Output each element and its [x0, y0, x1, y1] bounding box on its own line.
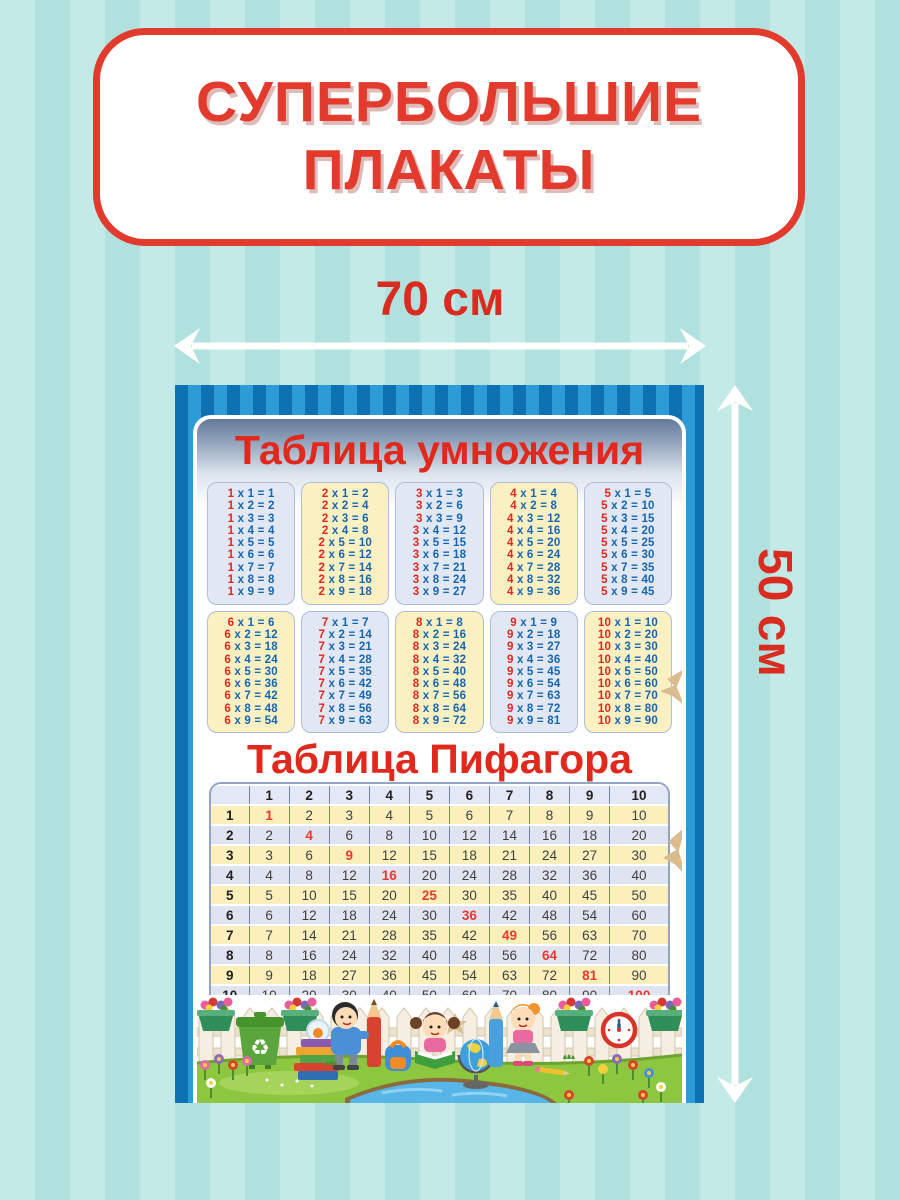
- mult-equation: 1 x 1 = 1: [209, 488, 293, 500]
- product-cell: 16: [369, 866, 409, 884]
- product-cell: 4: [249, 866, 289, 884]
- product-cell: 8: [289, 866, 329, 884]
- mult-equation: 8 x 5 = 40: [397, 666, 481, 678]
- col-header: 6: [449, 786, 489, 804]
- mult-equation: 3 x 2 = 6: [397, 500, 481, 512]
- product-cell: 2: [289, 806, 329, 824]
- banner-card: СУПЕРБОЛЬШИЕ ПЛАКАТЫ: [93, 28, 805, 246]
- mult-equation: 2 x 1 = 2: [303, 488, 387, 500]
- product-cell: 35: [489, 886, 529, 904]
- mult-equation: 6 x 6 = 36: [209, 678, 293, 690]
- product-cell: 32: [529, 866, 569, 884]
- pythagoras-header-row: 12345678910: [211, 786, 668, 804]
- mult-equation: 4 x 8 = 32: [492, 574, 576, 586]
- row-header: 3: [211, 846, 249, 864]
- mult-card: 9 x 1 = 99 x 2 = 189 x 3 = 279 x 4 = 369…: [490, 611, 578, 734]
- mult-equation: 9 x 5 = 45: [492, 666, 576, 678]
- mult-equation: 5 x 1 = 5: [586, 488, 670, 500]
- flower-box-icon: [197, 998, 235, 1032]
- product-cell: 30: [409, 906, 449, 924]
- product-cell: 36: [449, 906, 489, 924]
- mult-equation: 4 x 3 = 12: [492, 513, 576, 525]
- product-cell: 48: [529, 906, 569, 924]
- product-cell: 20: [409, 866, 449, 884]
- mult-equation: 4 x 2 = 8: [492, 500, 576, 512]
- product-cell: 30: [449, 886, 489, 904]
- mult-equation: 2 x 8 = 16: [303, 574, 387, 586]
- col-header: 9: [569, 786, 609, 804]
- product-cell: 5: [409, 806, 449, 824]
- product-cell: 72: [529, 966, 569, 984]
- mult-equation: 9 x 1 = 9: [492, 617, 576, 629]
- product-cell: 1: [249, 806, 289, 824]
- mult-equation: 1 x 6 = 6: [209, 549, 293, 561]
- mult-equation: 3 x 7 = 21: [397, 562, 481, 574]
- product-cell: 20: [609, 826, 668, 844]
- pythagoras-row: 55101520253035404550: [211, 886, 668, 904]
- product-cell: 56: [529, 926, 569, 944]
- mult-equation: 5 x 5 = 25: [586, 537, 670, 549]
- product-cell: 7: [249, 926, 289, 944]
- mult-equation: 5 x 3 = 15: [586, 513, 670, 525]
- row-header: 5: [211, 886, 249, 904]
- mult-equation: 6 x 3 = 18: [209, 641, 293, 653]
- product-cell: 40: [609, 866, 668, 884]
- mult-equation: 10 x 9 = 90: [586, 715, 670, 727]
- product-cell: 9: [569, 806, 609, 824]
- row-header: 9: [211, 966, 249, 984]
- mult-equation: 2 x 2 = 4: [303, 500, 387, 512]
- mult-equation: 2 x 6 = 12: [303, 549, 387, 561]
- mult-equation: 9 x 3 = 27: [492, 641, 576, 653]
- mult-equation: 3 x 3 = 9: [397, 513, 481, 525]
- product-cell: 5: [249, 886, 289, 904]
- mult-equation: 10 x 7 = 70: [586, 690, 670, 702]
- mult-equation: 9 x 8 = 72: [492, 703, 576, 715]
- mult-equation: 6 x 5 = 30: [209, 666, 293, 678]
- product-cell: 8: [369, 826, 409, 844]
- mult-card: 4 x 1 = 44 x 2 = 84 x 3 = 124 x 4 = 164 …: [490, 482, 578, 605]
- backpack-icon: [385, 1042, 411, 1071]
- mult-equation: 5 x 8 = 40: [586, 574, 670, 586]
- width-dimension-label: 70 см: [175, 272, 705, 327]
- product-cell: 15: [329, 886, 369, 904]
- mult-equation: 3 x 9 = 27: [397, 586, 481, 598]
- product-cell: 35: [409, 926, 449, 944]
- mult-equation: 1 x 5 = 5: [209, 537, 293, 549]
- product-cell: 49: [489, 926, 529, 944]
- pythagoras-table-wrap: 1234567891011234567891022468101214161820…: [209, 782, 670, 1008]
- product-cell: 24: [329, 946, 369, 964]
- product-cell: 18: [289, 966, 329, 984]
- product-cell: 36: [369, 966, 409, 984]
- product-cell: 56: [489, 946, 529, 964]
- pythagoras-row: 99182736455463728190: [211, 966, 668, 984]
- product-cell: 45: [409, 966, 449, 984]
- mult-equation: 1 x 2 = 2: [209, 500, 293, 512]
- mult-equation: 7 x 8 = 56: [303, 703, 387, 715]
- mult-equation: 4 x 9 = 36: [492, 586, 576, 598]
- mult-equation: 10 x 5 = 50: [586, 666, 670, 678]
- row-header: 1: [211, 806, 249, 824]
- product-cell: 40: [409, 946, 449, 964]
- product-cell: 6: [329, 826, 369, 844]
- mult-equation: 3 x 5 = 15: [397, 537, 481, 549]
- mult-equation: 9 x 4 = 36: [492, 654, 576, 666]
- mult-equation: 6 x 1 = 6: [209, 617, 293, 629]
- product-cell: 32: [369, 946, 409, 964]
- clock-icon: [603, 1014, 635, 1046]
- mult-equation: 2 x 5 = 10: [303, 537, 387, 549]
- mult-equation: 10 x 6 = 60: [586, 678, 670, 690]
- mult-equation: 1 x 4 = 4: [209, 525, 293, 537]
- product-cell: 45: [569, 886, 609, 904]
- product-cell: 14: [289, 926, 329, 944]
- mult-equation: 4 x 6 = 24: [492, 549, 576, 561]
- col-header: 7: [489, 786, 529, 804]
- mult-equation: 10 x 2 = 20: [586, 629, 670, 641]
- product-cell: 24: [369, 906, 409, 924]
- mult-equation: 6 x 2 = 12: [209, 629, 293, 641]
- mult-equation: 4 x 1 = 4: [492, 488, 576, 500]
- mult-equation: 5 x 6 = 30: [586, 549, 670, 561]
- mult-equation: 6 x 7 = 42: [209, 690, 293, 702]
- product-cell: 42: [489, 906, 529, 924]
- mult-card: 3 x 1 = 33 x 2 = 63 x 3 = 93 x 4 = 123 x…: [395, 482, 483, 605]
- pythagoras-table-title: Таблица Пифагора: [197, 739, 682, 779]
- product-cell: 16: [529, 826, 569, 844]
- product-cell: 8: [529, 806, 569, 824]
- mult-equation: 10 x 1 = 10: [586, 617, 670, 629]
- mult-equation: 8 x 6 = 48: [397, 678, 481, 690]
- pythagoras-table: 1234567891011234567891022468101214161820…: [211, 784, 668, 1006]
- mult-equation: 4 x 7 = 28: [492, 562, 576, 574]
- mult-equation: 5 x 9 = 45: [586, 586, 670, 598]
- product-cell: 90: [609, 966, 668, 984]
- row-header: 4: [211, 866, 249, 884]
- mult-card: 8 x 1 = 88 x 2 = 168 x 3 = 248 x 4 = 328…: [395, 611, 483, 734]
- mult-card: 10 x 1 = 1010 x 2 = 2010 x 3 = 3010 x 4 …: [584, 611, 672, 734]
- poster-card: Таблица умножения 1 x 1 = 11 x 2 = 21 x …: [193, 415, 686, 1103]
- row-header: 6: [211, 906, 249, 924]
- pythagoras-row: 4481216202428323640: [211, 866, 668, 884]
- horizontal-arrow-icon: [172, 324, 708, 368]
- mult-equation: 7 x 7 = 49: [303, 690, 387, 702]
- banner-line-1: СУПЕРБОЛЬШИЕ: [196, 73, 702, 133]
- mult-equation: 1 x 9 = 9: [209, 586, 293, 598]
- product-cell: 36: [569, 866, 609, 884]
- product-cell: 54: [569, 906, 609, 924]
- mult-equation: 2 x 3 = 6: [303, 513, 387, 525]
- flower-box-icon: [646, 998, 682, 1032]
- mult-equation: 7 x 2 = 14: [303, 629, 387, 641]
- mult-equation: 10 x 3 = 30: [586, 641, 670, 653]
- row-header: 8: [211, 946, 249, 964]
- mult-equation: 10 x 4 = 40: [586, 654, 670, 666]
- product-cell: 27: [329, 966, 369, 984]
- mult-card: 1 x 1 = 11 x 2 = 21 x 3 = 31 x 4 = 41 x …: [207, 482, 295, 605]
- mult-equation: 8 x 1 = 8: [397, 617, 481, 629]
- flower-box-icon: [555, 998, 593, 1032]
- product-cell: 48: [449, 946, 489, 964]
- product-cell: 54: [449, 966, 489, 984]
- product-cell: 12: [329, 866, 369, 884]
- mult-equation: 7 x 4 = 28: [303, 654, 387, 666]
- product-cell: 80: [609, 946, 668, 964]
- mult-equation: 5 x 7 = 35: [586, 562, 670, 574]
- pythagoras-row: 88162432404856647280: [211, 946, 668, 964]
- mult-equation: 1 x 7 = 7: [209, 562, 293, 574]
- mult-equation: 6 x 8 = 48: [209, 703, 293, 715]
- product-cell: 40: [529, 886, 569, 904]
- mult-equation: 7 x 3 = 21: [303, 641, 387, 653]
- height-dimension-label: 50 см: [747, 548, 802, 677]
- mult-equation: 8 x 9 = 72: [397, 715, 481, 727]
- mult-equation: 4 x 4 = 16: [492, 525, 576, 537]
- product-cell: 15: [409, 846, 449, 864]
- product-cell: 28: [369, 926, 409, 944]
- mult-equation: 2 x 4 = 8: [303, 525, 387, 537]
- mult-equation: 7 x 6 = 42: [303, 678, 387, 690]
- mult-equation: 7 x 5 = 35: [303, 666, 387, 678]
- mult-equation: 9 x 2 = 18: [492, 629, 576, 641]
- boy-with-red-pencil-icon: [331, 999, 381, 1070]
- mult-equation: 5 x 4 = 20: [586, 525, 670, 537]
- product-cell: 3: [329, 806, 369, 824]
- mult-equation: 1 x 3 = 3: [209, 513, 293, 525]
- mult-equation: 6 x 4 = 24: [209, 654, 293, 666]
- mult-equation: 7 x 1 = 7: [303, 617, 387, 629]
- product-cell: 18: [449, 846, 489, 864]
- mult-equation: 6 x 9 = 54: [209, 715, 293, 727]
- product-cell: 63: [489, 966, 529, 984]
- product-cell: 3: [249, 846, 289, 864]
- mult-equation: 8 x 7 = 56: [397, 690, 481, 702]
- product-cell: 21: [489, 846, 529, 864]
- mult-equation: 2 x 7 = 14: [303, 562, 387, 574]
- product-cell: 81: [569, 966, 609, 984]
- mult-grid: 1 x 1 = 11 x 2 = 21 x 3 = 31 x 4 = 41 x …: [207, 482, 672, 733]
- mult-equation: 3 x 8 = 24: [397, 574, 481, 586]
- col-header: 8: [529, 786, 569, 804]
- product-cell: 25: [409, 886, 449, 904]
- mult-equation: 3 x 4 = 12: [397, 525, 481, 537]
- col-header: 3: [329, 786, 369, 804]
- mult-equation: 3 x 6 = 18: [397, 549, 481, 561]
- mult-card: 6 x 1 = 66 x 2 = 126 x 3 = 186 x 4 = 246…: [207, 611, 295, 734]
- product-cell: 9: [329, 846, 369, 864]
- col-header: 1: [249, 786, 289, 804]
- product-cell: 14: [489, 826, 529, 844]
- mult-equation: 9 x 7 = 63: [492, 690, 576, 702]
- mult-equation: 7 x 9 = 63: [303, 715, 387, 727]
- product-cell: 50: [609, 886, 668, 904]
- vertical-arrow-icon: [712, 383, 758, 1105]
- product-cell: 21: [329, 926, 369, 944]
- mult-equation: 5 x 2 = 10: [586, 500, 670, 512]
- multiplication-table-title: Таблица умножения: [197, 427, 682, 474]
- mult-equation: 3 x 1 = 3: [397, 488, 481, 500]
- mult-card: 2 x 1 = 22 x 2 = 42 x 3 = 62 x 4 = 82 x …: [301, 482, 389, 605]
- banner-line-2: ПЛАКАТЫ: [303, 141, 596, 201]
- mult-card: 5 x 1 = 55 x 2 = 105 x 3 = 155 x 4 = 205…: [584, 482, 672, 605]
- pythagoras-row: 112345678910: [211, 806, 668, 824]
- mult-equation: 4 x 5 = 20: [492, 537, 576, 549]
- mult-equation: 10 x 8 = 80: [586, 703, 670, 715]
- product-cell: 30: [609, 846, 668, 864]
- mult-equation: 1 x 8 = 8: [209, 574, 293, 586]
- product-cell: 70: [609, 926, 668, 944]
- col-header: 5: [409, 786, 449, 804]
- pythagoras-row: 336912151821242730: [211, 846, 668, 864]
- product-cell: 42: [449, 926, 489, 944]
- product-cell: 20: [369, 886, 409, 904]
- product-cell: 4: [289, 826, 329, 844]
- product-cell: 10: [289, 886, 329, 904]
- product-cell: 18: [329, 906, 369, 924]
- product-cell: 7: [489, 806, 529, 824]
- product-cell: 6: [249, 906, 289, 924]
- product-cell: 28: [489, 866, 529, 884]
- product-image: СУПЕРБОЛЬШИЕ ПЛАКАТЫ 70 см 50 см Таблица…: [0, 0, 900, 1200]
- product-cell: 63: [569, 926, 609, 944]
- mult-equation: 8 x 3 = 24: [397, 641, 481, 653]
- product-cell: 6: [289, 846, 329, 864]
- col-header: 4: [369, 786, 409, 804]
- pythagoras-row: 22468101214161820: [211, 826, 668, 844]
- mult-equation: 2 x 9 = 18: [303, 586, 387, 598]
- product-cell: 12: [369, 846, 409, 864]
- product-cell: 6: [449, 806, 489, 824]
- product-cell: 12: [289, 906, 329, 924]
- product-cell: 16: [289, 946, 329, 964]
- product-cell: 8: [249, 946, 289, 964]
- col-header: 2: [289, 786, 329, 804]
- product-cell: 12: [449, 826, 489, 844]
- product-cell: 64: [529, 946, 569, 964]
- mult-equation: 8 x 4 = 32: [397, 654, 481, 666]
- kids-illustration: ♻: [197, 995, 682, 1103]
- pythagoras-row: 66121824303642485460: [211, 906, 668, 924]
- product-cell: 18: [569, 826, 609, 844]
- product-cell: 9: [249, 966, 289, 984]
- row-header: 7: [211, 926, 249, 944]
- product-cell: 2: [249, 826, 289, 844]
- mult-card: 7 x 1 = 77 x 2 = 147 x 3 = 217 x 4 = 287…: [301, 611, 389, 734]
- product-cell: 27: [569, 846, 609, 864]
- product-cell: 10: [609, 806, 668, 824]
- mult-equation: 8 x 2 = 16: [397, 629, 481, 641]
- svg-text:♻: ♻: [250, 1036, 270, 1061]
- col-header: 10: [609, 786, 668, 804]
- mult-equation: 9 x 6 = 54: [492, 678, 576, 690]
- row-header: 2: [211, 826, 249, 844]
- product-cell: 10: [409, 826, 449, 844]
- product-cell: 60: [609, 906, 668, 924]
- product-cell: 4: [369, 806, 409, 824]
- product-cell: 24: [449, 866, 489, 884]
- pythagoras-row: 77142128354249566370: [211, 926, 668, 944]
- product-cell: 72: [569, 946, 609, 964]
- poster: Таблица умножения 1 x 1 = 11 x 2 = 21 x …: [175, 385, 704, 1103]
- product-cell: 24: [529, 846, 569, 864]
- mult-equation: 8 x 8 = 64: [397, 703, 481, 715]
- mult-equation: 9 x 9 = 81: [492, 715, 576, 727]
